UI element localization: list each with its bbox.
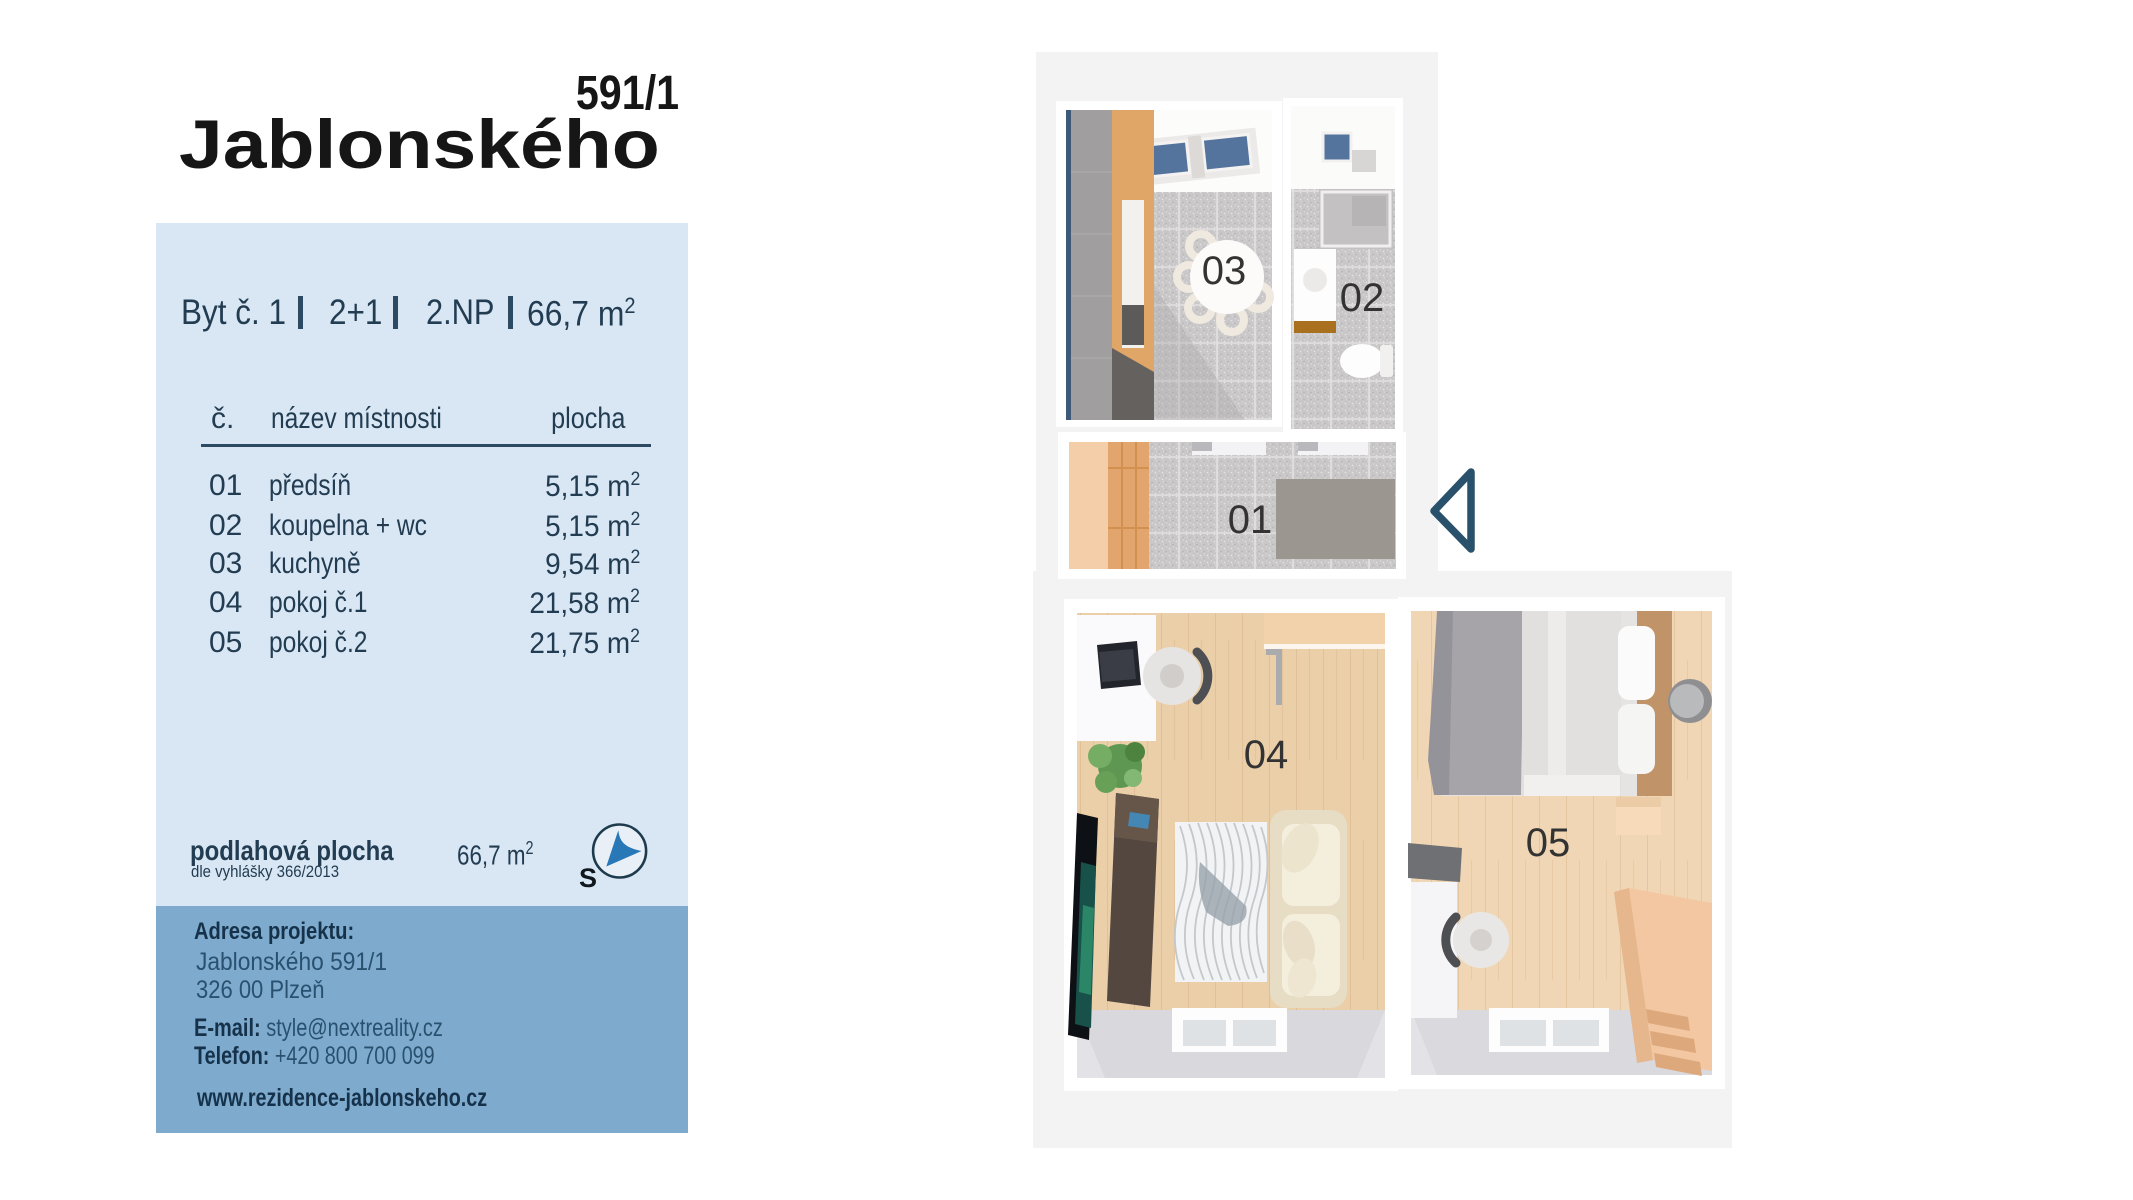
svg-text:02: 02 [1340,276,1385,320]
svg-text:03: 03 [1202,249,1247,293]
svg-text:04: 04 [1244,733,1289,777]
svg-text:05: 05 [1526,821,1571,865]
svg-text:01: 01 [1228,498,1273,542]
